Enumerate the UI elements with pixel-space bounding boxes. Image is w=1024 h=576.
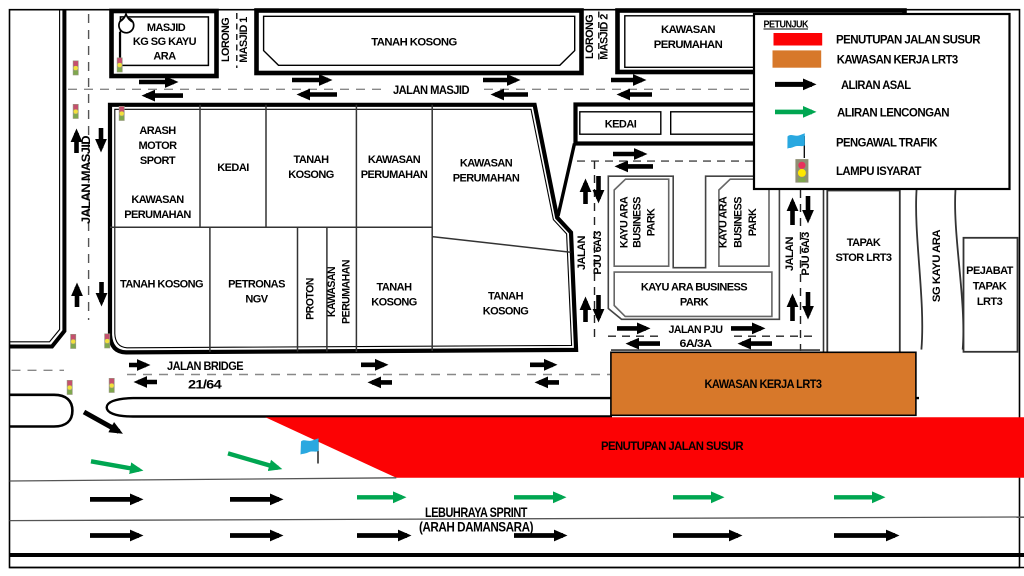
svg-text:JALAN MASJID: JALAN MASJID	[81, 136, 93, 224]
svg-text:KEDAI: KEDAI	[217, 162, 249, 174]
svg-text:ARASH: ARASH	[139, 125, 176, 137]
svg-text:LRT3: LRT3	[977, 296, 1003, 308]
svg-text:KG SG KAYU: KG SG KAYU	[133, 36, 197, 48]
svg-text:21/64: 21/64	[188, 380, 222, 392]
svg-text:TANAH: TANAH	[294, 154, 330, 166]
svg-text:PEJABAT: PEJABAT	[966, 265, 1014, 277]
svg-text:BUSINESS: BUSINESS	[733, 197, 745, 248]
svg-text:LORONG: LORONG	[220, 18, 232, 62]
svg-text:TANAH: TANAH	[377, 282, 413, 294]
svg-text:PROTON: PROTON	[305, 278, 317, 320]
svg-text:KOSONG: KOSONG	[288, 169, 334, 181]
svg-text:LEBUHRAYA SPRINT: LEBUHRAYA SPRINT	[425, 505, 528, 520]
svg-text:PENUTUPAN JALAN SUSUR: PENUTUPAN JALAN SUSUR	[836, 35, 981, 47]
svg-text:ALIRAN ASAL: ALIRAN ASAL	[841, 80, 911, 92]
svg-text:MASJID: MASJID	[147, 22, 186, 34]
svg-text:BUSINESS: BUSINESS	[632, 197, 644, 248]
svg-text:PARK: PARK	[747, 208, 759, 236]
svg-text:LORONG: LORONG	[584, 15, 596, 59]
svg-text:KAWASAN KERJA LRT3: KAWASAN KERJA LRT3	[837, 55, 958, 67]
svg-text:MOTOR: MOTOR	[139, 140, 178, 152]
svg-text:KAYU ARA: KAYU ARA	[619, 196, 631, 248]
svg-text:PERUMAHAN: PERUMAHAN	[124, 209, 191, 221]
svg-text:KAWASAN: KAWASAN	[368, 154, 421, 166]
svg-text:KAWASAN: KAWASAN	[661, 24, 715, 36]
svg-text:SG KAYU ARA: SG KAYU ARA	[931, 230, 943, 303]
svg-text:JALAN MASJID: JALAN MASJID	[393, 85, 469, 97]
svg-text:JALAN PJU: JALAN PJU	[669, 324, 723, 336]
svg-text:NGV: NGV	[245, 294, 268, 306]
svg-text:KAWASAN KERJA LRT3: KAWASAN KERJA LRT3	[705, 379, 822, 391]
svg-text:(ARAH DAMANSARA): (ARAH DAMANSARA)	[419, 520, 533, 535]
svg-text:KAYU ARA BUSINESS: KAYU ARA BUSINESS	[641, 282, 747, 294]
svg-text:PJU 6A/3: PJU 6A/3	[800, 232, 812, 276]
svg-text:PERUMAHAN: PERUMAHAN	[361, 169, 428, 181]
svg-text:KAYU ARA: KAYU ARA	[718, 196, 730, 248]
svg-text:PETUNJUK: PETUNJUK	[764, 20, 810, 31]
svg-text:PARK: PARK	[680, 297, 709, 309]
svg-text:KAWASAN: KAWASAN	[131, 194, 184, 206]
svg-text:MASJID 2: MASJID 2	[599, 14, 611, 60]
svg-text:MASJID 1: MASJID 1	[238, 17, 250, 63]
svg-text:PARK: PARK	[646, 208, 658, 236]
svg-text:PETRONAS: PETRONAS	[228, 279, 285, 291]
svg-text:KOSONG: KOSONG	[371, 297, 417, 309]
svg-text:JALAN BRIDGE: JALAN BRIDGE	[167, 361, 244, 373]
svg-text:TANAH: TANAH	[488, 291, 524, 303]
svg-text:PERUMAHAN: PERUMAHAN	[453, 173, 520, 185]
svg-text:TAPAK: TAPAK	[847, 237, 881, 249]
svg-text:ALIRAN LENCONGAN: ALIRAN LENCONGAN	[837, 108, 949, 120]
svg-text:JALAN: JALAN	[784, 236, 796, 271]
svg-text:PENUTUPAN JALAN SUSUR: PENUTUPAN JALAN SUSUR	[601, 441, 744, 453]
svg-text:STOR LRT3: STOR LRT3	[836, 252, 892, 264]
svg-text:SPORT: SPORT	[140, 155, 176, 167]
svg-text:JALAN: JALAN	[576, 235, 588, 270]
svg-text:ARA: ARA	[153, 51, 176, 63]
svg-text:PERUMAHAN: PERUMAHAN	[654, 39, 723, 51]
svg-text:PENGAWAL TRAFIK: PENGAWAL TRAFIK	[836, 138, 938, 150]
svg-text:TANAH KOSONG: TANAH KOSONG	[120, 279, 203, 291]
svg-text:KAWASAN: KAWASAN	[460, 158, 513, 170]
svg-text:6A/3A: 6A/3A	[680, 338, 713, 350]
svg-text:PJU 6A/3: PJU 6A/3	[592, 231, 604, 275]
svg-text:PERUMAHAN: PERUMAHAN	[341, 260, 353, 324]
svg-text:LAMPU ISYARAT: LAMPU ISYARAT	[836, 166, 922, 178]
svg-text:KAWASAN: KAWASAN	[326, 267, 338, 317]
svg-text:KOSONG: KOSONG	[483, 306, 529, 318]
svg-text:TANAH KOSONG: TANAH KOSONG	[371, 37, 457, 49]
svg-text:KEDAI: KEDAI	[605, 119, 637, 131]
svg-text:TAPAK: TAPAK	[973, 281, 1007, 293]
